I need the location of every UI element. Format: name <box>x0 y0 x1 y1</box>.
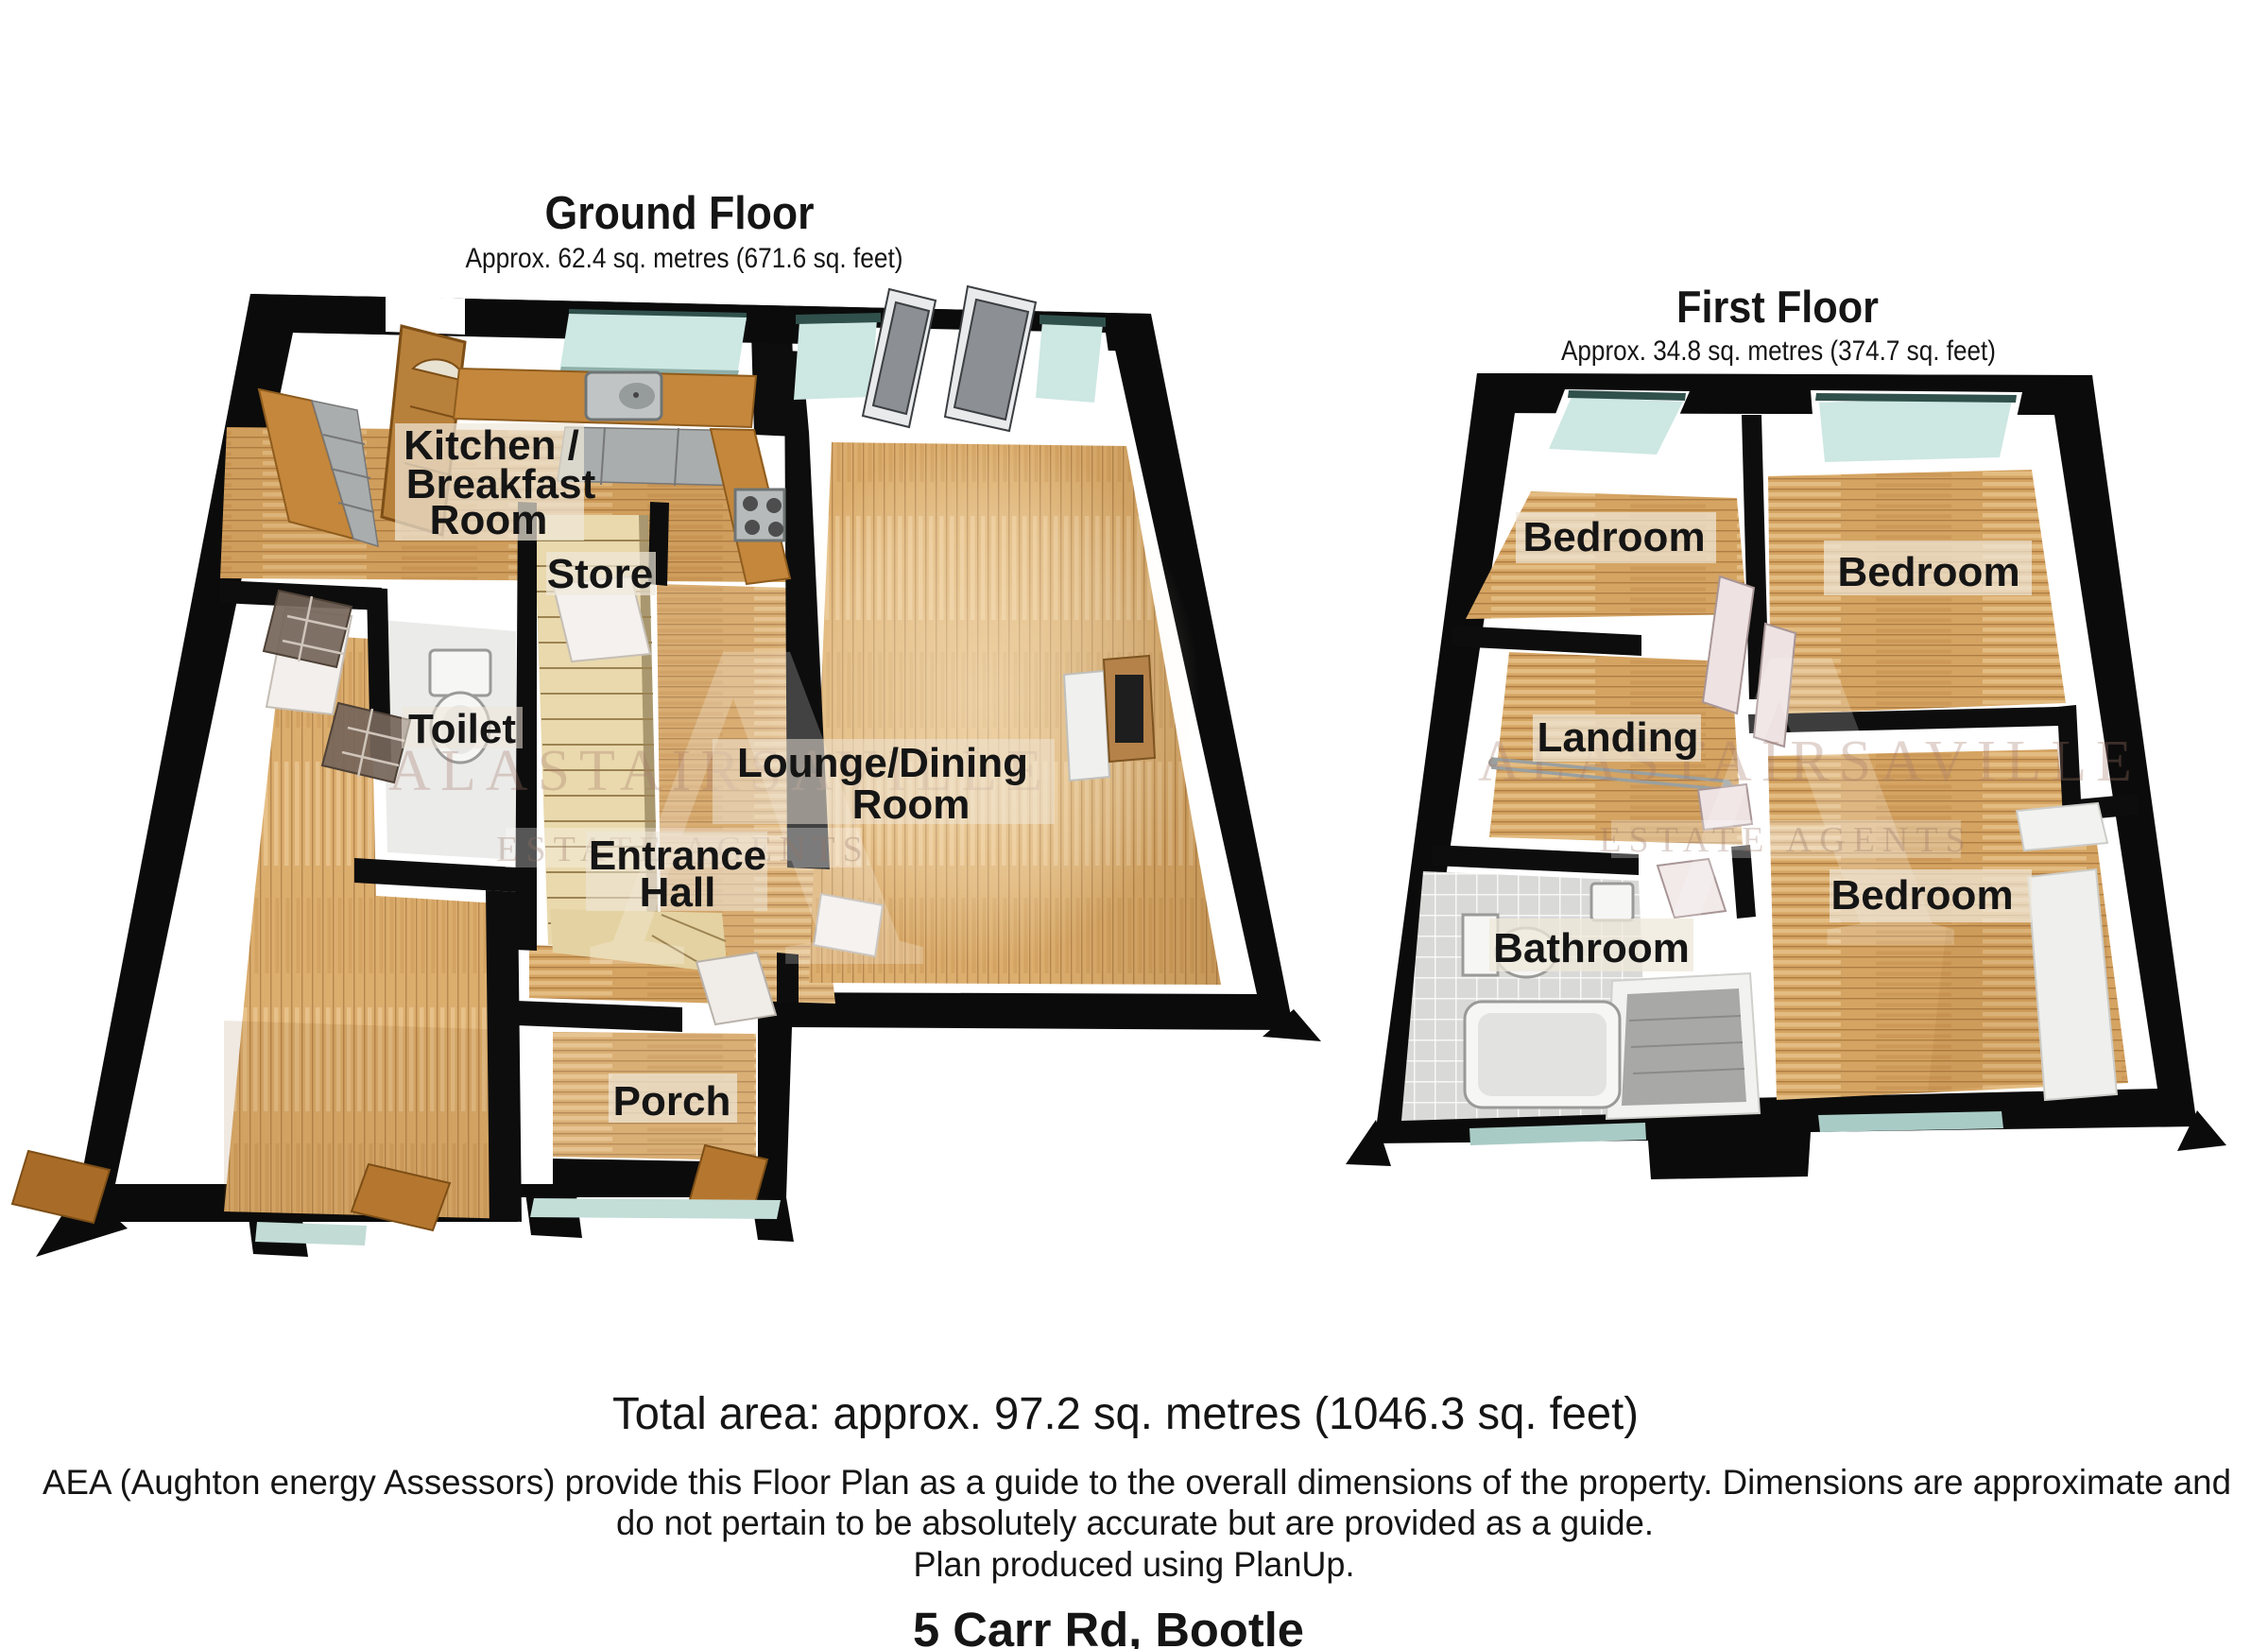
svg-text:5 Carr Rd, Bootle: 5 Carr Rd, Bootle <box>913 1603 1304 1649</box>
svg-text:Approx. 62.4 sq. metres (671.6: Approx. 62.4 sq. metres (671.6 sq. feet) <box>466 243 903 274</box>
svg-text:Plan produced using PlanUp.: Plan produced using PlanUp. <box>914 1545 1355 1584</box>
svg-text:Room: Room <box>852 782 971 828</box>
svg-text:Hall: Hall <box>640 869 716 916</box>
svg-text:AEA (Aughton energy Assessors): AEA (Aughton energy Assessors) provide t… <box>43 1463 2231 1502</box>
svg-text:Bedroom: Bedroom <box>1830 872 2013 919</box>
svg-text:Store: Store <box>547 551 653 597</box>
svg-text:Total area: approx. 97.2 sq. m: Total area: approx. 97.2 sq. metres (104… <box>612 1389 1639 1439</box>
svg-text:do not pertain to be absolutel: do not pertain to be absolutely accurate… <box>616 1503 1654 1542</box>
svg-text:First Floor: First Floor <box>1676 282 1879 332</box>
svg-text:Bedroom: Bedroom <box>1837 549 2019 595</box>
svg-text:Toilet: Toilet <box>408 706 516 752</box>
svg-text:Bedroom: Bedroom <box>1522 514 1705 560</box>
svg-text:Ground Floor: Ground Floor <box>545 188 815 239</box>
svg-text:Lounge/Dining: Lounge/Dining <box>737 740 1028 786</box>
svg-text:Bathroom: Bathroom <box>1493 925 1690 971</box>
svg-text:Approx. 34.8 sq. metres (374.7: Approx. 34.8 sq. metres (374.7 sq. feet) <box>1561 335 1996 367</box>
svg-text:ESTATE AGENTS: ESTATE AGENTS <box>1599 820 1972 860</box>
svg-text:Landing: Landing <box>1537 714 1698 761</box>
svg-text:Room: Room <box>430 497 548 543</box>
svg-text:Porch: Porch <box>613 1078 731 1125</box>
